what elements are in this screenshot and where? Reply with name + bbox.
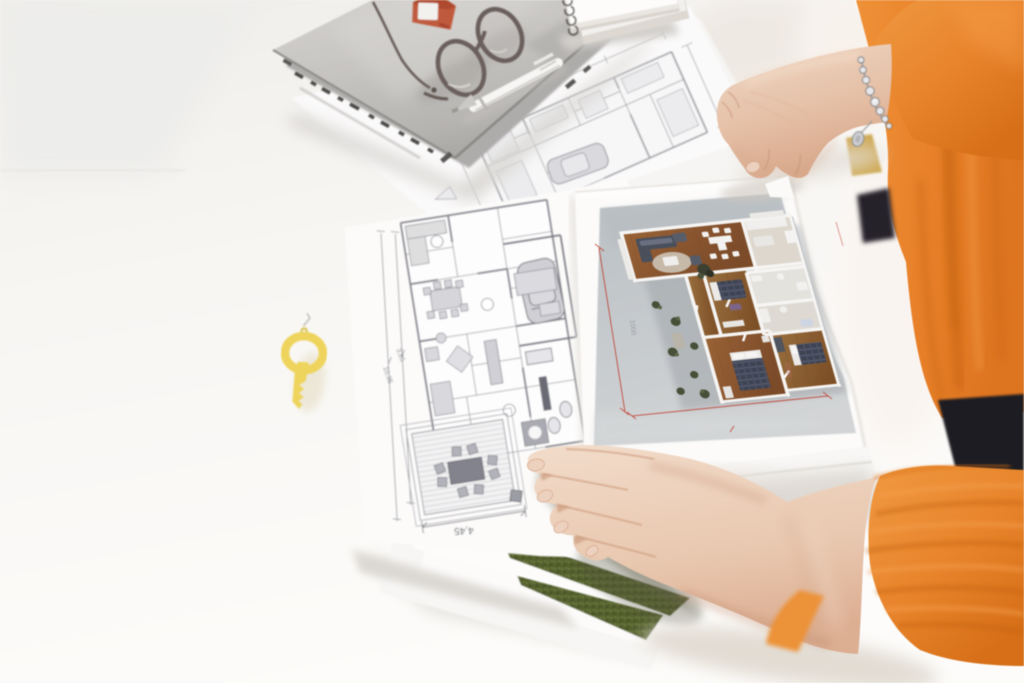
svg-text:4,45: 4,45 — [453, 524, 473, 536]
